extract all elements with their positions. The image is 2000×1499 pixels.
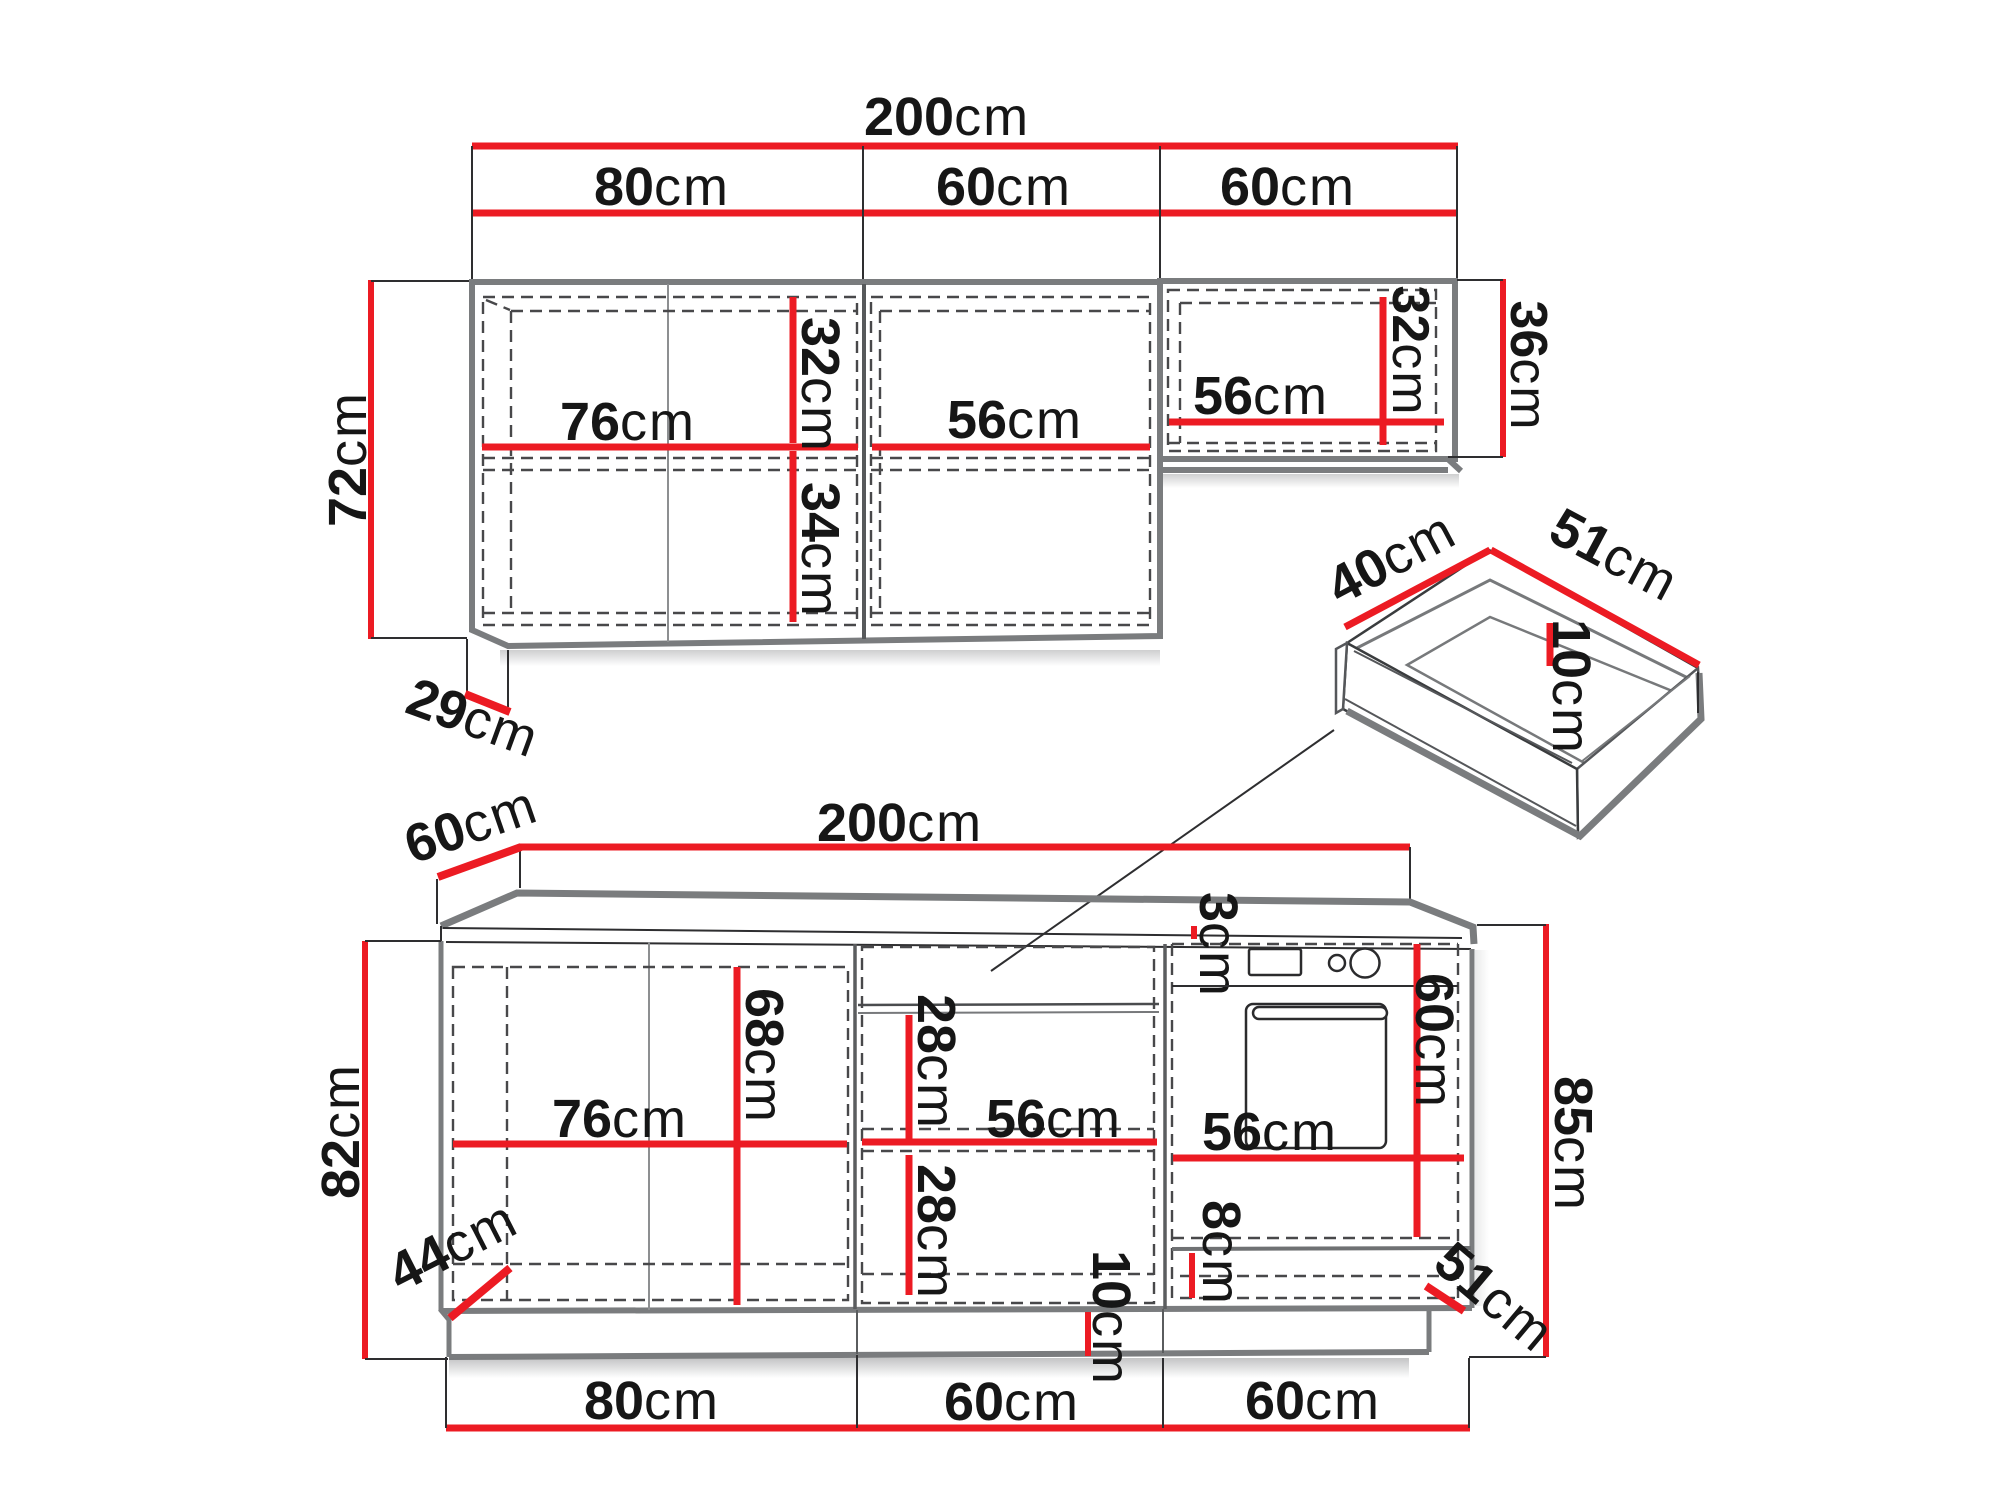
svg-text:36cm: 36cm [1499,300,1557,431]
svg-text:8cm: 8cm [1191,1200,1251,1306]
svg-text:56cm: 56cm [1202,1102,1338,1162]
svg-text:34cm: 34cm [790,482,850,618]
svg-text:200cm: 200cm [864,87,1030,147]
svg-text:60cm: 60cm [1404,973,1464,1109]
svg-text:60cm: 60cm [936,157,1072,217]
svg-text:28cm: 28cm [906,994,966,1130]
svg-text:80cm: 80cm [584,1371,720,1431]
svg-text:60cm: 60cm [944,1372,1080,1432]
svg-text:56cm: 56cm [986,1089,1122,1149]
svg-text:76cm: 76cm [552,1089,688,1149]
svg-text:72cm: 72cm [318,391,378,527]
svg-text:10cm: 10cm [1081,1250,1141,1386]
svg-text:68cm: 68cm [734,988,794,1124]
svg-text:60cm: 60cm [1245,1371,1381,1431]
svg-text:85cm: 85cm [1543,1076,1603,1212]
svg-text:32cm: 32cm [1381,285,1439,416]
svg-text:10cm: 10cm [1541,619,1601,755]
svg-text:32cm: 32cm [790,317,850,453]
svg-text:80cm: 80cm [594,157,730,217]
svg-text:82cm: 82cm [311,1063,371,1199]
svg-text:76cm: 76cm [560,392,696,452]
svg-text:28cm: 28cm [906,1164,966,1300]
svg-text:200cm: 200cm [817,793,983,853]
svg-text:56cm: 56cm [1193,366,1329,426]
svg-text:60cm: 60cm [1220,157,1356,217]
svg-text:56cm: 56cm [947,390,1083,450]
